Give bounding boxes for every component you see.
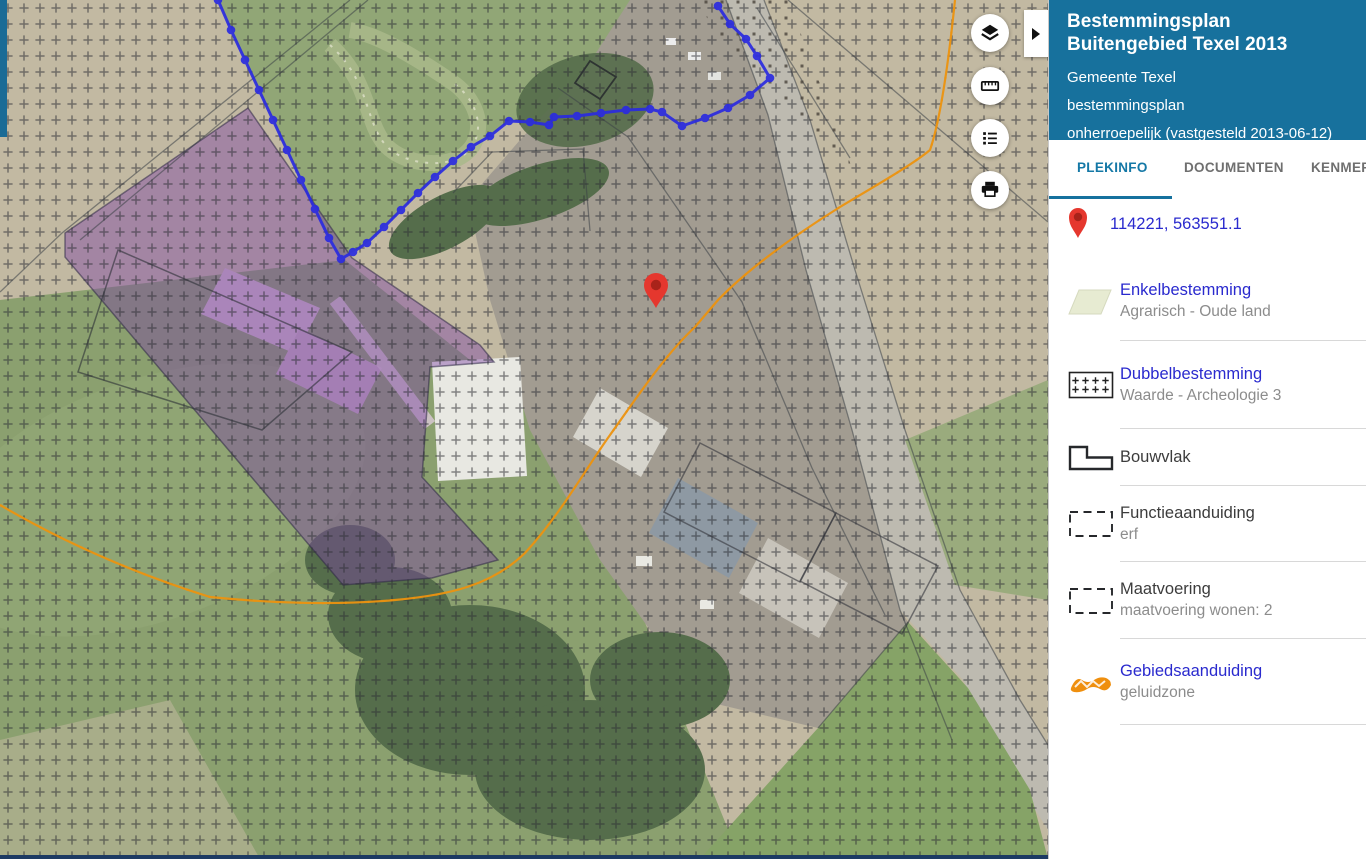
item-subtitle: maatvoering wonen: 2 [1120,600,1356,622]
tab-kenmerken[interactable]: KENMERKEN [1311,160,1366,175]
dashed-rect-icon [1068,587,1114,615]
item-subtitle: erf [1120,524,1356,546]
plan-viewer: Bestemmingsplan Buitengebied Texel 2013 … [0,0,1366,859]
measure-button[interactable] [971,67,1009,105]
item-subtitle: geluidzone [1120,682,1356,704]
item-title[interactable]: Gebiedsaanduiding [1120,660,1356,682]
layers-icon [977,20,1003,46]
list-item-enkelbestemming[interactable]: EnkelbestemmingAgrarisch - Oude land [1048,262,1366,341]
plan-type: bestemmingsplan [1067,92,1348,120]
layers-button[interactable] [971,14,1009,52]
left-edge-strip [0,0,7,137]
tab-plekinfo[interactable]: PLEKINFO [1077,160,1148,175]
plan-gemeente: Gemeente Texel [1067,64,1348,92]
plus-hatch-overlay [0,0,1048,859]
coordinates-value: 114221, 563551.1 [1110,215,1242,234]
chevron-right-icon [1031,28,1041,40]
legend-list-icon [977,125,1003,151]
list-item-bouwvlak: Bouwvlak [1048,429,1366,486]
dashed-rect-icon [1068,510,1114,538]
panel-tabs: PLEKINFODOCUMENTENKENMERKEN [1049,140,1366,200]
printer-icon [977,177,1003,203]
plan-title: Bestemmingsplan Buitengebied Texel 2013 [1067,10,1348,56]
item-title[interactable]: Enkelbestemming [1120,279,1356,301]
clicked-location-row: 114221, 563551.1 [1068,206,1242,240]
map-canvas[interactable] [0,0,1048,859]
aerial-map [0,0,1048,859]
item-title: Bouwvlak [1120,446,1356,468]
ruler-icon [977,73,1003,99]
plan-header: Bestemmingsplan Buitengebied Texel 2013 … [1049,0,1366,140]
bottom-edge-strip [0,855,1048,859]
orange-zone-ribbon-icon [1067,667,1115,697]
tab-documenten[interactable]: DOCUMENTEN [1184,160,1284,175]
panel-collapse-toggle[interactable] [1024,10,1048,57]
parallelogram-swatch-icon [1067,288,1115,316]
plekinfo-list: EnkelbestemmingAgrarisch - Oude landDubb… [1048,262,1366,725]
legend-button[interactable] [971,119,1009,157]
item-title[interactable]: Dubbelbestemming [1120,363,1356,385]
list-item-dubbelbestemming[interactable]: DubbelbestemmingWaarde - Archeologie 3 [1048,341,1366,429]
plus-hatch-swatch-icon [1068,371,1114,399]
print-button[interactable] [971,171,1009,209]
item-title: Functieaanduiding [1120,502,1356,524]
map-pin-icon [1068,206,1088,240]
list-item-gebiedsaanduiding[interactable]: Gebiedsaanduidinggeluidzone [1048,639,1366,725]
active-tab-underline [1049,196,1172,199]
item-subtitle: Agrarisch - Oude land [1120,301,1356,323]
item-title: Maatvoering [1120,578,1356,600]
building-plot-outline-icon [1068,445,1114,471]
item-subtitle: Waarde - Archeologie 3 [1120,385,1356,407]
list-item-maatvoering: Maatvoeringmaatvoering wonen: 2 [1048,562,1366,639]
list-item-functieaanduiding: Functieaanduidingerf [1048,486,1366,562]
